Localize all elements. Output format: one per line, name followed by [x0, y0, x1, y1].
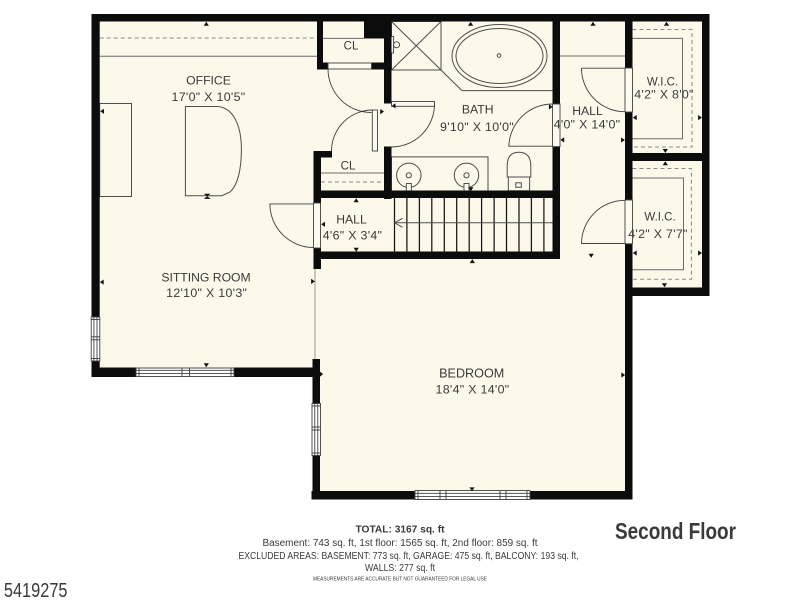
svg-text:HALL: HALL	[572, 104, 603, 118]
svg-text:18'4" X 14'0": 18'4" X 14'0"	[436, 382, 510, 396]
svg-text:OFFICE: OFFICE	[186, 73, 231, 87]
svg-text:WALLS: 277 sq. ft: WALLS: 277 sq. ft	[365, 563, 435, 574]
svg-text:MEASUREMENTS ARE ACCURATE BUT: MEASUREMENTS ARE ACCURATE BUT NOT GUARAN…	[313, 576, 487, 582]
svg-text:W.I.C.: W.I.C.	[644, 212, 675, 224]
svg-text:HALL: HALL	[336, 213, 367, 227]
svg-text:12'10" X 10'3": 12'10" X 10'3"	[166, 286, 247, 300]
svg-text:CL: CL	[341, 161, 356, 173]
svg-text:4'0" X 14'0": 4'0" X 14'0"	[554, 118, 621, 132]
svg-text:BATH: BATH	[462, 102, 494, 116]
svg-text:BEDROOM: BEDROOM	[439, 367, 504, 381]
svg-text:SITTING ROOM: SITTING ROOM	[161, 271, 250, 285]
svg-text:TOTAL: 3167 sq. ft: TOTAL: 3167 sq. ft	[356, 525, 446, 536]
svg-text:Second Floor: Second Floor	[615, 518, 736, 544]
svg-text:4'2" X 8'0": 4'2" X 8'0"	[634, 87, 694, 101]
svg-text:4'6" X 3'4": 4'6" X 3'4"	[323, 229, 383, 243]
svg-text:9'10" X 10'0": 9'10" X 10'0"	[440, 120, 514, 134]
svg-text:CL: CL	[344, 41, 359, 53]
svg-text:Basement: 743 sq. ft, 1st floo: Basement: 743 sq. ft, 1st floor: 1565 sq…	[263, 538, 538, 549]
svg-text:EXCLUDED AREAS: BASEMENT: 773: EXCLUDED AREAS: BASEMENT: 773 sq. ft, GA…	[239, 551, 579, 562]
svg-text:5419275: 5419275	[4, 580, 68, 600]
svg-text:17'0" X 10'5": 17'0" X 10'5"	[172, 90, 246, 104]
svg-text:4'2" X 7'7": 4'2" X 7'7"	[628, 227, 688, 241]
